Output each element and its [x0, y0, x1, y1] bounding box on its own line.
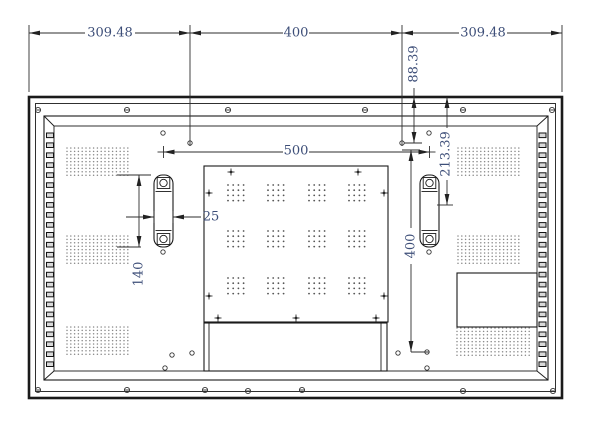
label-plate	[457, 273, 537, 327]
dim-label-bracket-height: 140	[132, 262, 147, 287]
dimension-arrowheads	[29, 31, 562, 352]
panel-holes	[161, 131, 431, 370]
dim-label-bracket-width: 25	[203, 210, 220, 225]
plate-vent-hole-clusters	[227, 184, 365, 294]
connector-box-outline	[204, 323, 387, 371]
side-vent-slots	[47, 133, 547, 367]
outer-frame	[29, 97, 562, 398]
dimension-top-chain: 309.48 400 309.48	[29, 25, 562, 146]
bevel-corner-tl	[44, 116, 54, 126]
plate-screws	[206, 169, 388, 322]
dim-label-edge-to-hole: 88.39	[407, 45, 422, 82]
bevel-corner-br	[537, 371, 548, 380]
dim-label-top-left: 309.48	[87, 26, 133, 41]
dimension-vesa-vertical: 400	[402, 150, 429, 352]
bevel-corner-tr	[537, 116, 548, 126]
dimension-bracket-spacing: 500	[164, 144, 430, 159]
drawing-canvas: 309.48 400 309.48 500 88.39 213.39 400 1…	[0, 0, 610, 441]
vesa-plate	[204, 166, 388, 322]
dim-label-bracket-spacing: 500	[284, 144, 309, 159]
dim-label-top-right: 309.48	[460, 26, 506, 41]
dimension-edge-to-hole: 88.39	[404, 45, 422, 143]
bevel-corner-bl	[44, 371, 54, 380]
dimension-bracket-width: 25	[126, 210, 219, 225]
dim-label-edge-to-bracket: 213.39	[439, 131, 454, 177]
technical-drawing-monitor-rear: 309.48 400 309.48 500 88.39 213.39 400 1…	[0, 0, 610, 441]
vent-perforations	[66, 147, 530, 356]
frame-outline	[29, 97, 562, 398]
dim-label-top-center: 400	[284, 26, 309, 41]
dim-label-vesa-vertical: 400	[404, 234, 419, 259]
mounting-brackets	[154, 175, 439, 247]
label-plate-outline	[457, 273, 537, 327]
vesa-plate-outline	[204, 166, 388, 322]
bottom-connector-box	[204, 323, 387, 371]
dimension-bracket-height: 140	[117, 175, 151, 286]
